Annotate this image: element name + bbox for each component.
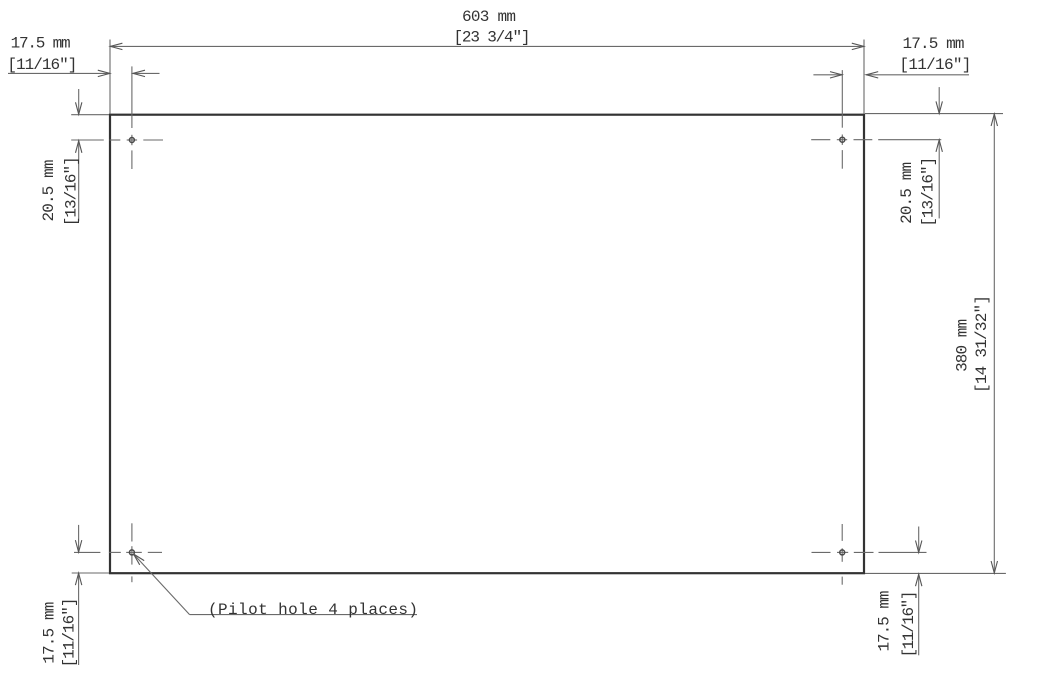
svg-text:380 mm: 380 mm (953, 319, 971, 372)
svg-text:[13/16"]: [13/16"] (62, 156, 80, 226)
svg-text:[13/16"]: [13/16"] (919, 157, 937, 227)
svg-text:[11/16"]: [11/16"] (900, 591, 918, 658)
svg-text:17.5 mm: 17.5 mm (11, 35, 71, 53)
svg-text:20.5 mm: 20.5 mm (898, 162, 916, 224)
svg-text:[11/16"]: [11/16"] (7, 56, 77, 74)
svg-text:603 mm: 603 mm (462, 8, 516, 26)
svg-text:[11/16"]: [11/16"] (61, 598, 79, 668)
svg-text:17.5 mm: 17.5 mm (41, 602, 59, 664)
svg-text:(Pilot hole 4 places): (Pilot hole 4 places) (208, 601, 418, 619)
svg-text:[23 3/4"]: [23 3/4"] (454, 28, 531, 46)
svg-text:17.5 mm: 17.5 mm (876, 591, 894, 652)
svg-text:[14 31/32"]: [14 31/32"] (973, 295, 991, 393)
svg-text:[11/16"]: [11/16"] (899, 56, 971, 74)
svg-text:17.5 mm: 17.5 mm (903, 35, 965, 53)
svg-text:20.5 mm: 20.5 mm (40, 160, 58, 222)
